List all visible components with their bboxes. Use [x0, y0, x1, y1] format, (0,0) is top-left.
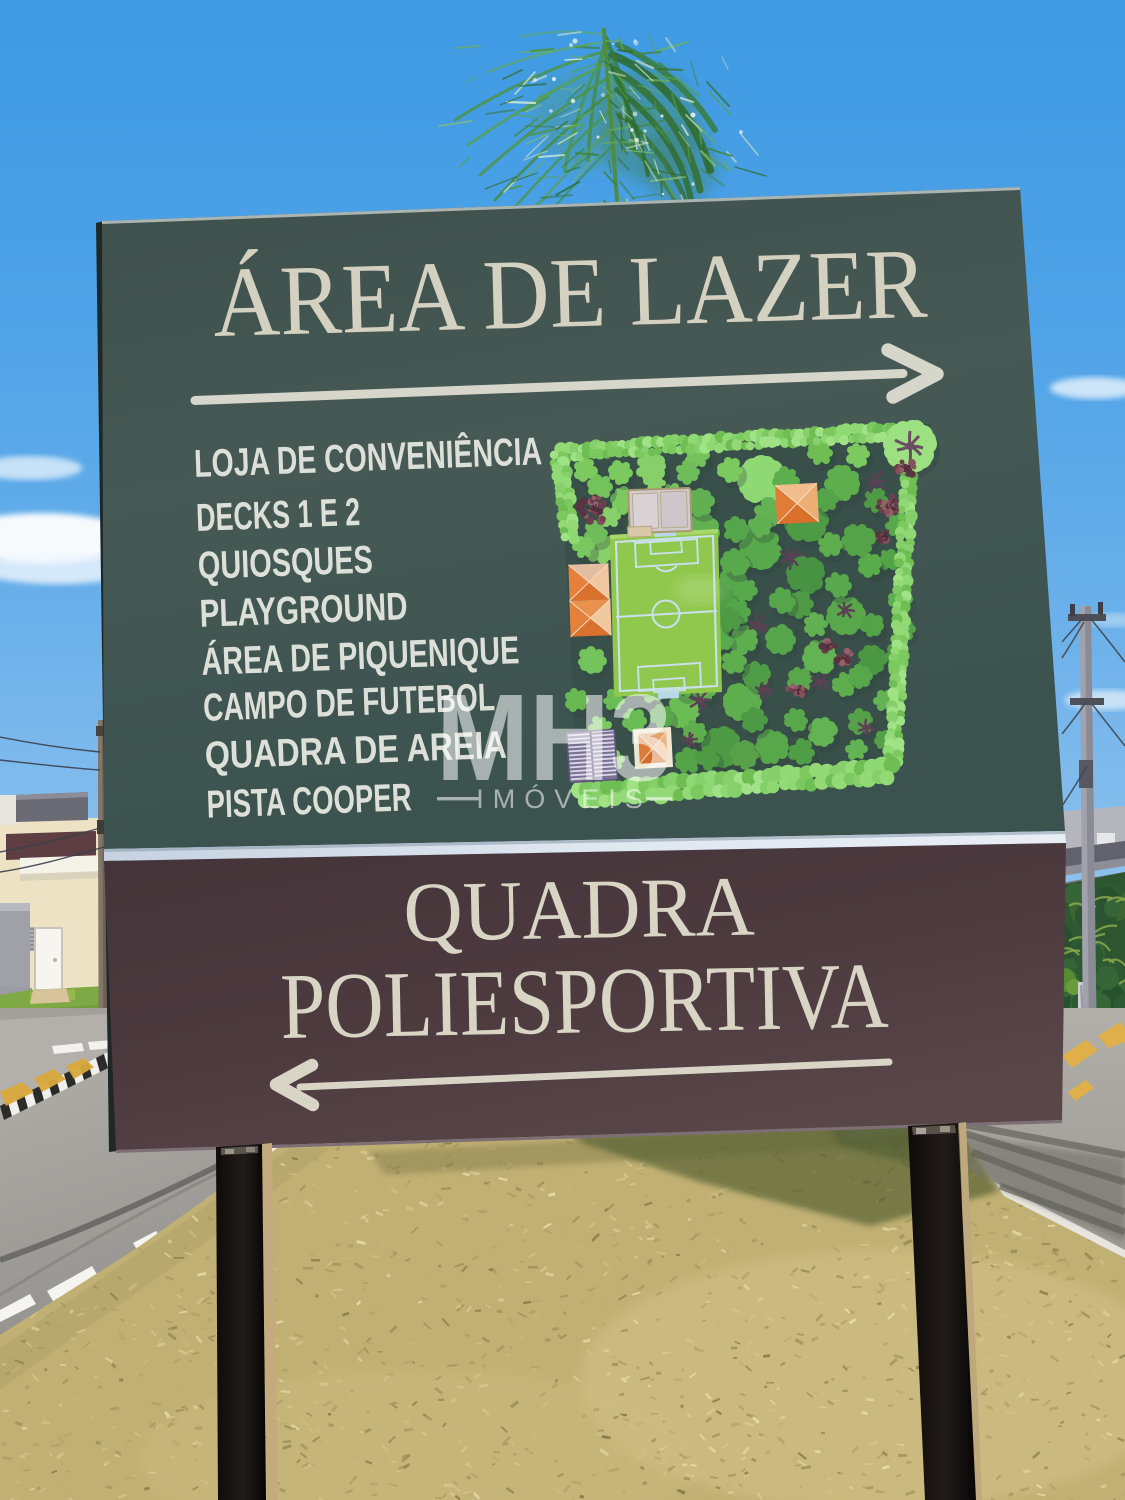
svg-text:PISTA COOPER: PISTA COOPER	[206, 776, 412, 826]
svg-text:POLIESPORTIVA: POLIESPORTIVA	[279, 944, 889, 1059]
svg-text:IMÓVEIS: IMÓVEIS	[476, 783, 652, 814]
svg-text:QUADRA: QUADRA	[403, 860, 756, 960]
svg-text:QUIOSQUES: QUIOSQUES	[197, 539, 373, 588]
svg-text:DECKS 1 E 2: DECKS 1 E 2	[195, 491, 360, 540]
svg-text:ÁREA DE LAZER: ÁREA DE LAZER	[212, 228, 929, 358]
svg-text:PLAYGROUND: PLAYGROUND	[199, 585, 408, 636]
